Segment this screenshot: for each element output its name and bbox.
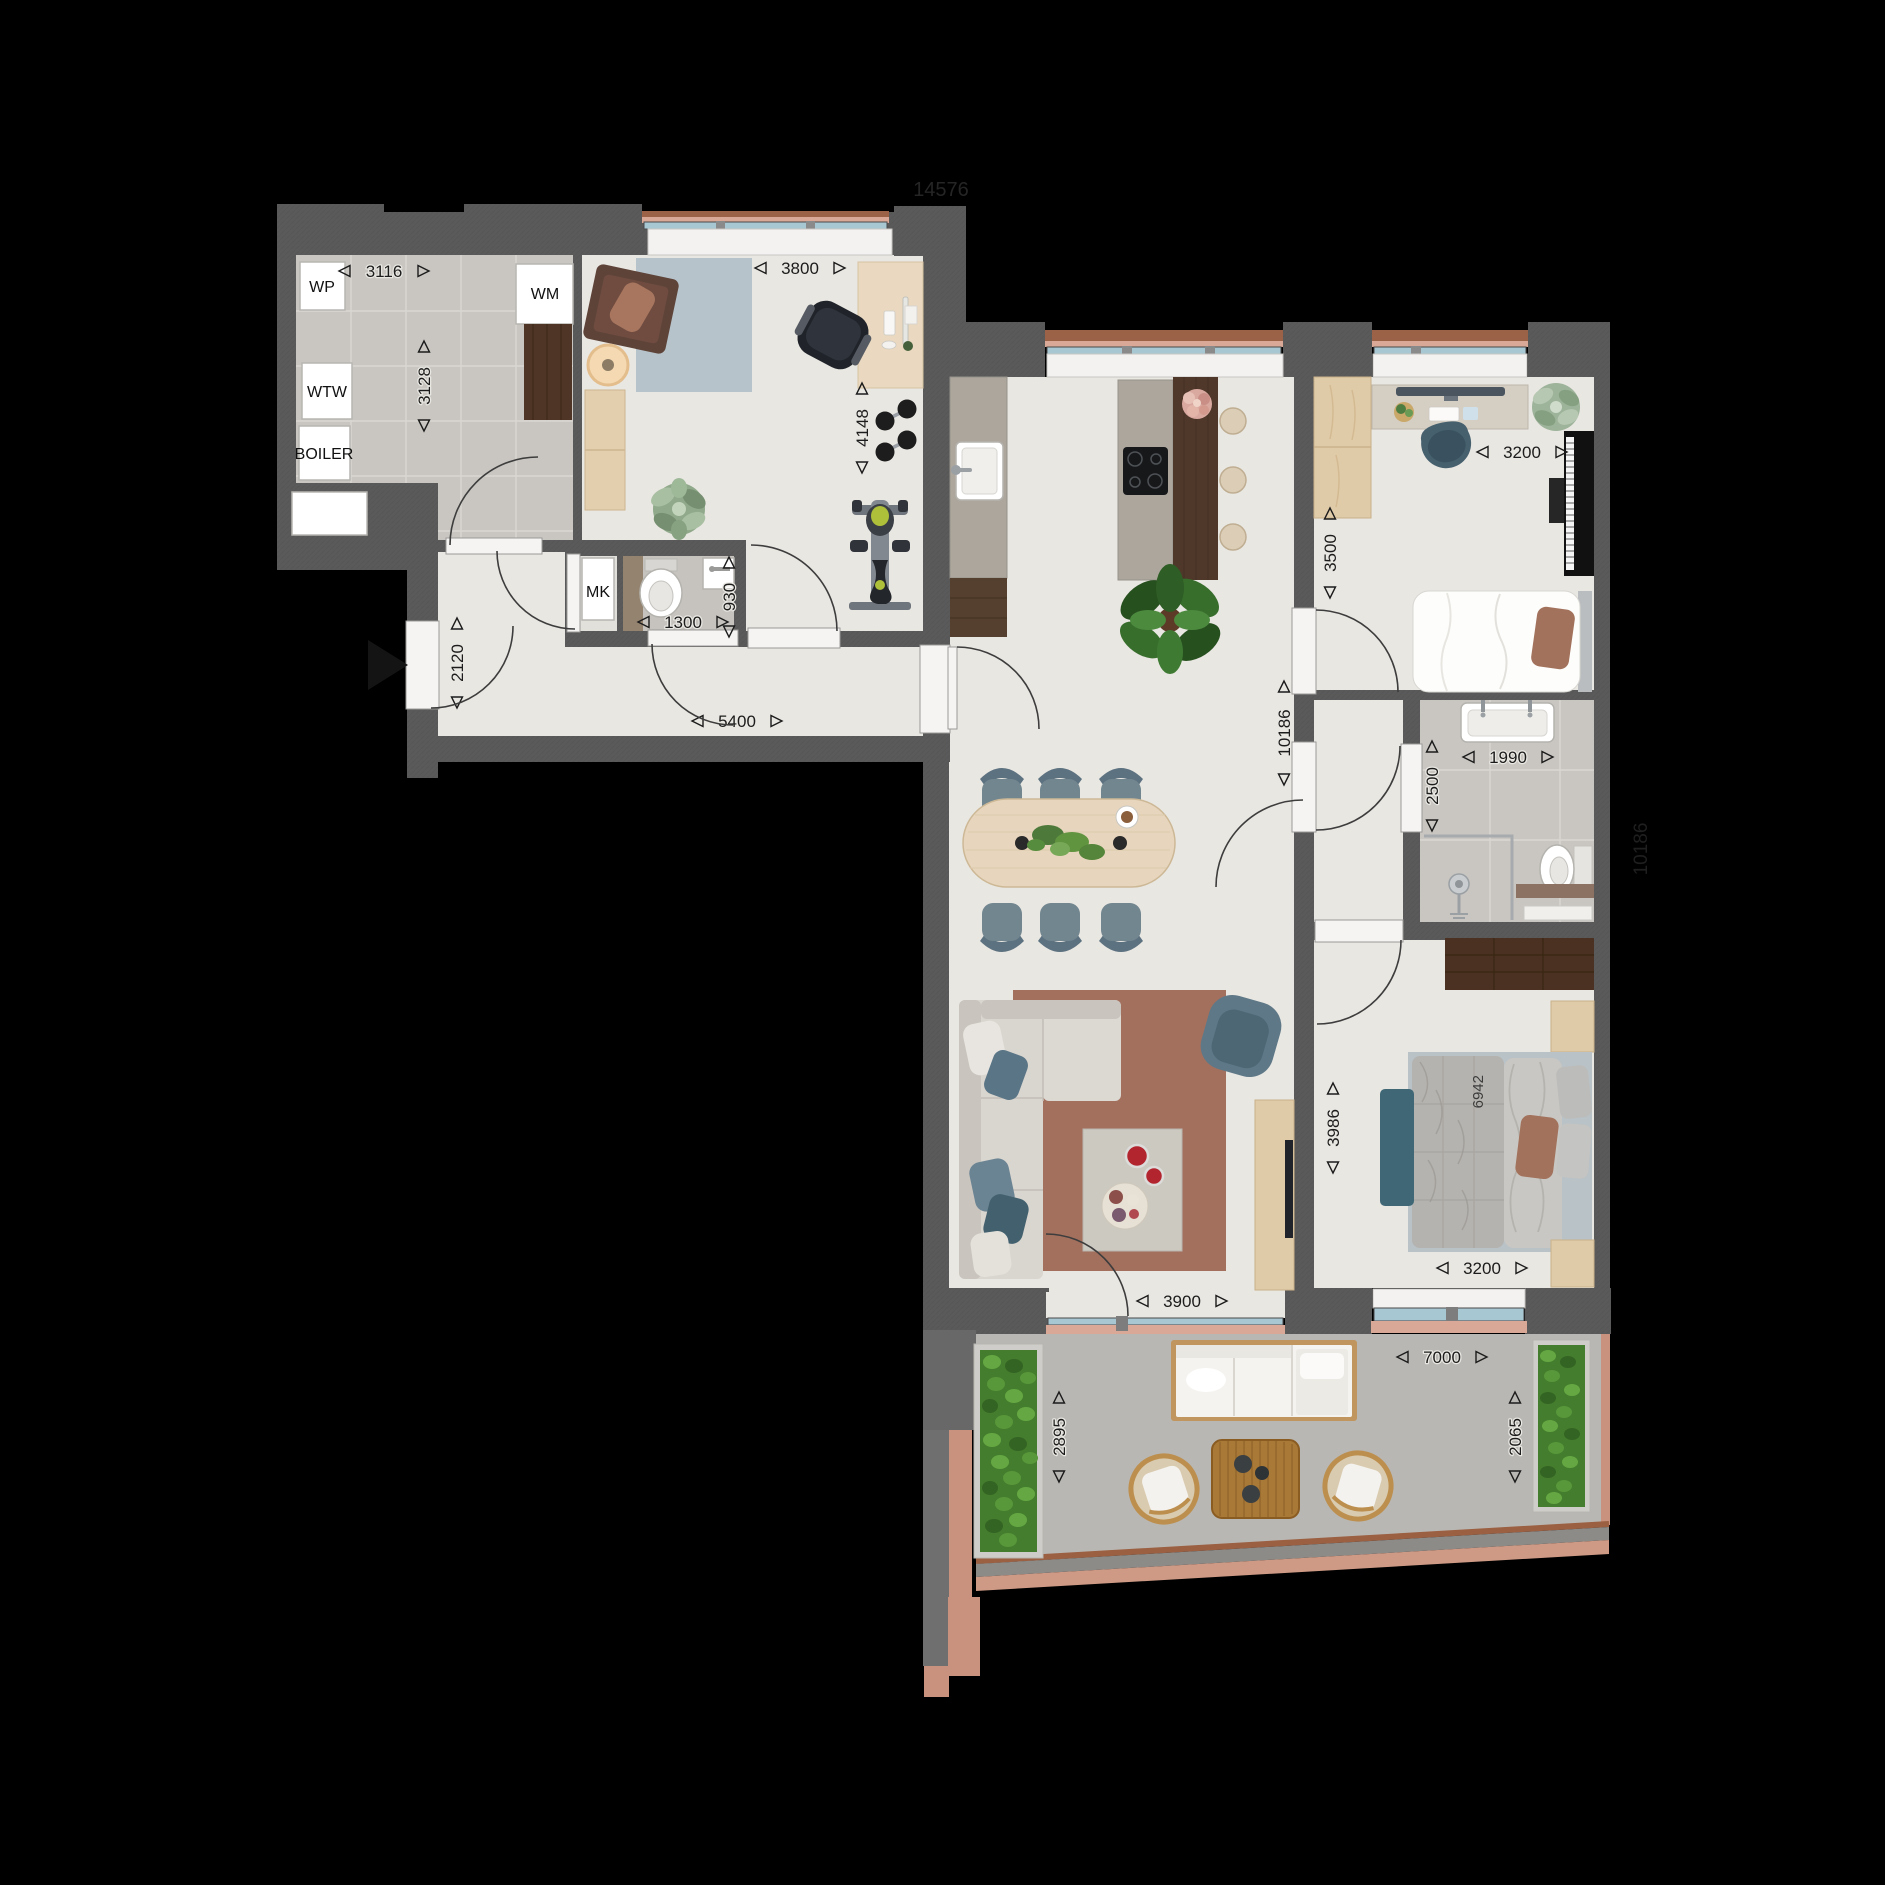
svg-text:14576: 14576 (913, 179, 969, 201)
svg-text:2120: 2120 (448, 644, 467, 682)
svg-text:2895: 2895 (1050, 1418, 1069, 1456)
svg-text:2500: 2500 (1423, 767, 1442, 805)
svg-text:1300: 1300 (664, 613, 702, 632)
svg-text:1990: 1990 (1489, 748, 1527, 767)
svg-text:3128: 3128 (415, 367, 434, 405)
svg-text:3500: 3500 (1321, 534, 1340, 572)
svg-text:3900: 3900 (1163, 1292, 1201, 1311)
svg-text:10186: 10186 (1631, 823, 1652, 876)
svg-text:3986: 3986 (1324, 1109, 1343, 1147)
svg-text:WP: WP (309, 279, 335, 296)
svg-text:3200: 3200 (1503, 443, 1541, 462)
svg-text:WM: WM (531, 286, 559, 303)
svg-text:2065: 2065 (1506, 1418, 1525, 1456)
svg-text:930: 930 (720, 583, 739, 611)
svg-text:BOILER: BOILER (295, 446, 354, 463)
svg-text:4148: 4148 (853, 409, 872, 447)
svg-text:10186: 10186 (1275, 709, 1294, 756)
svg-text:6942: 6942 (1470, 1075, 1487, 1108)
svg-text:7000: 7000 (1423, 1348, 1461, 1367)
svg-text:MK: MK (586, 584, 610, 601)
svg-text:WTW: WTW (307, 384, 348, 401)
svg-text:3800: 3800 (781, 259, 819, 278)
svg-text:3116: 3116 (366, 262, 403, 281)
svg-text:5400: 5400 (718, 712, 756, 731)
svg-text:3200: 3200 (1463, 1259, 1501, 1278)
